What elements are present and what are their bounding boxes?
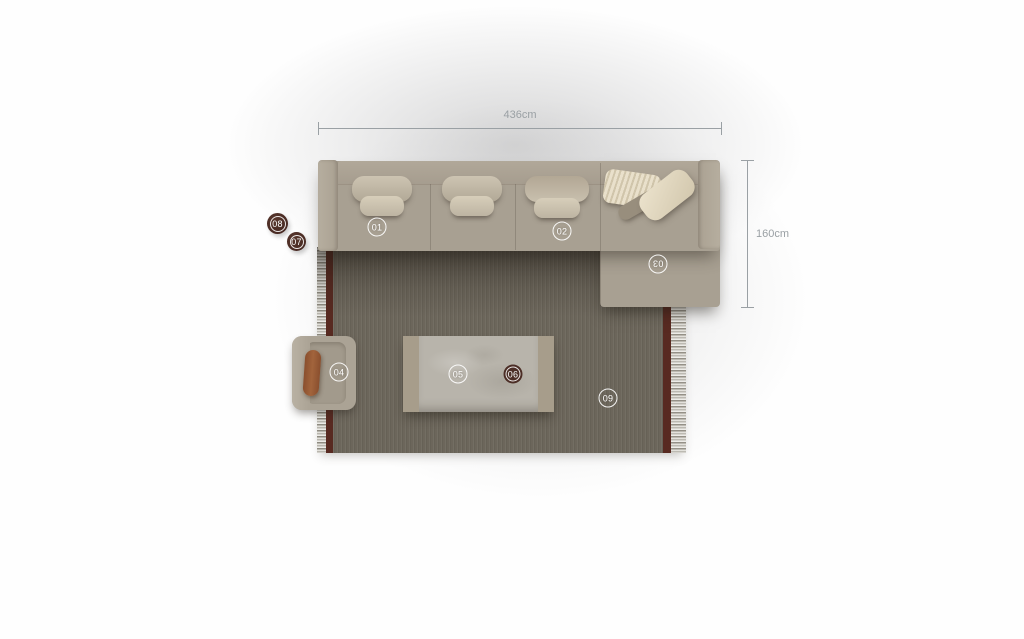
back-pillow-small xyxy=(360,196,404,216)
armchair-throw-blanket xyxy=(302,349,321,396)
sofa-armrest-right xyxy=(698,160,720,249)
marker-09[interactable]: 09 xyxy=(599,389,618,408)
dimension-tick-bottom xyxy=(741,307,754,308)
coffee-table xyxy=(403,336,554,412)
dimension-tick-right xyxy=(721,122,722,135)
marker-01[interactable]: 01 xyxy=(368,218,387,237)
marker-04[interactable]: 04 xyxy=(330,363,349,382)
height-dimension-label: 160cm xyxy=(756,228,789,240)
width-dimension-label: 436cm xyxy=(318,109,722,121)
marker-02[interactable]: 02 xyxy=(553,222,572,241)
dimension-line-vertical xyxy=(747,160,748,308)
sofa-seam xyxy=(515,184,516,250)
marker-05[interactable]: 05 xyxy=(449,365,468,384)
side-table-large: 08 xyxy=(267,213,288,234)
back-pillow-small xyxy=(534,198,580,218)
marker-07[interactable]: 07 xyxy=(287,232,306,251)
floorplan-render: 436cm 160cm xyxy=(0,0,1024,639)
coffee-table-end-cap-left xyxy=(403,336,419,412)
side-table-small: 07 xyxy=(287,232,306,251)
marker-03[interactable]: 03 xyxy=(649,255,668,274)
horizontal-dimension: 436cm xyxy=(318,122,722,142)
coffee-table-end-cap-right xyxy=(538,336,554,412)
sofa-seam xyxy=(430,184,431,250)
dimension-line-horizontal xyxy=(318,128,722,129)
vertical-dimension: 160cm xyxy=(741,160,801,308)
marker-06[interactable]: 06 xyxy=(504,365,523,384)
back-pillow-small xyxy=(450,196,494,216)
sofa-chaise-seam xyxy=(600,163,601,306)
sofa-armrest-left xyxy=(318,160,338,251)
marker-08[interactable]: 08 xyxy=(267,213,288,234)
